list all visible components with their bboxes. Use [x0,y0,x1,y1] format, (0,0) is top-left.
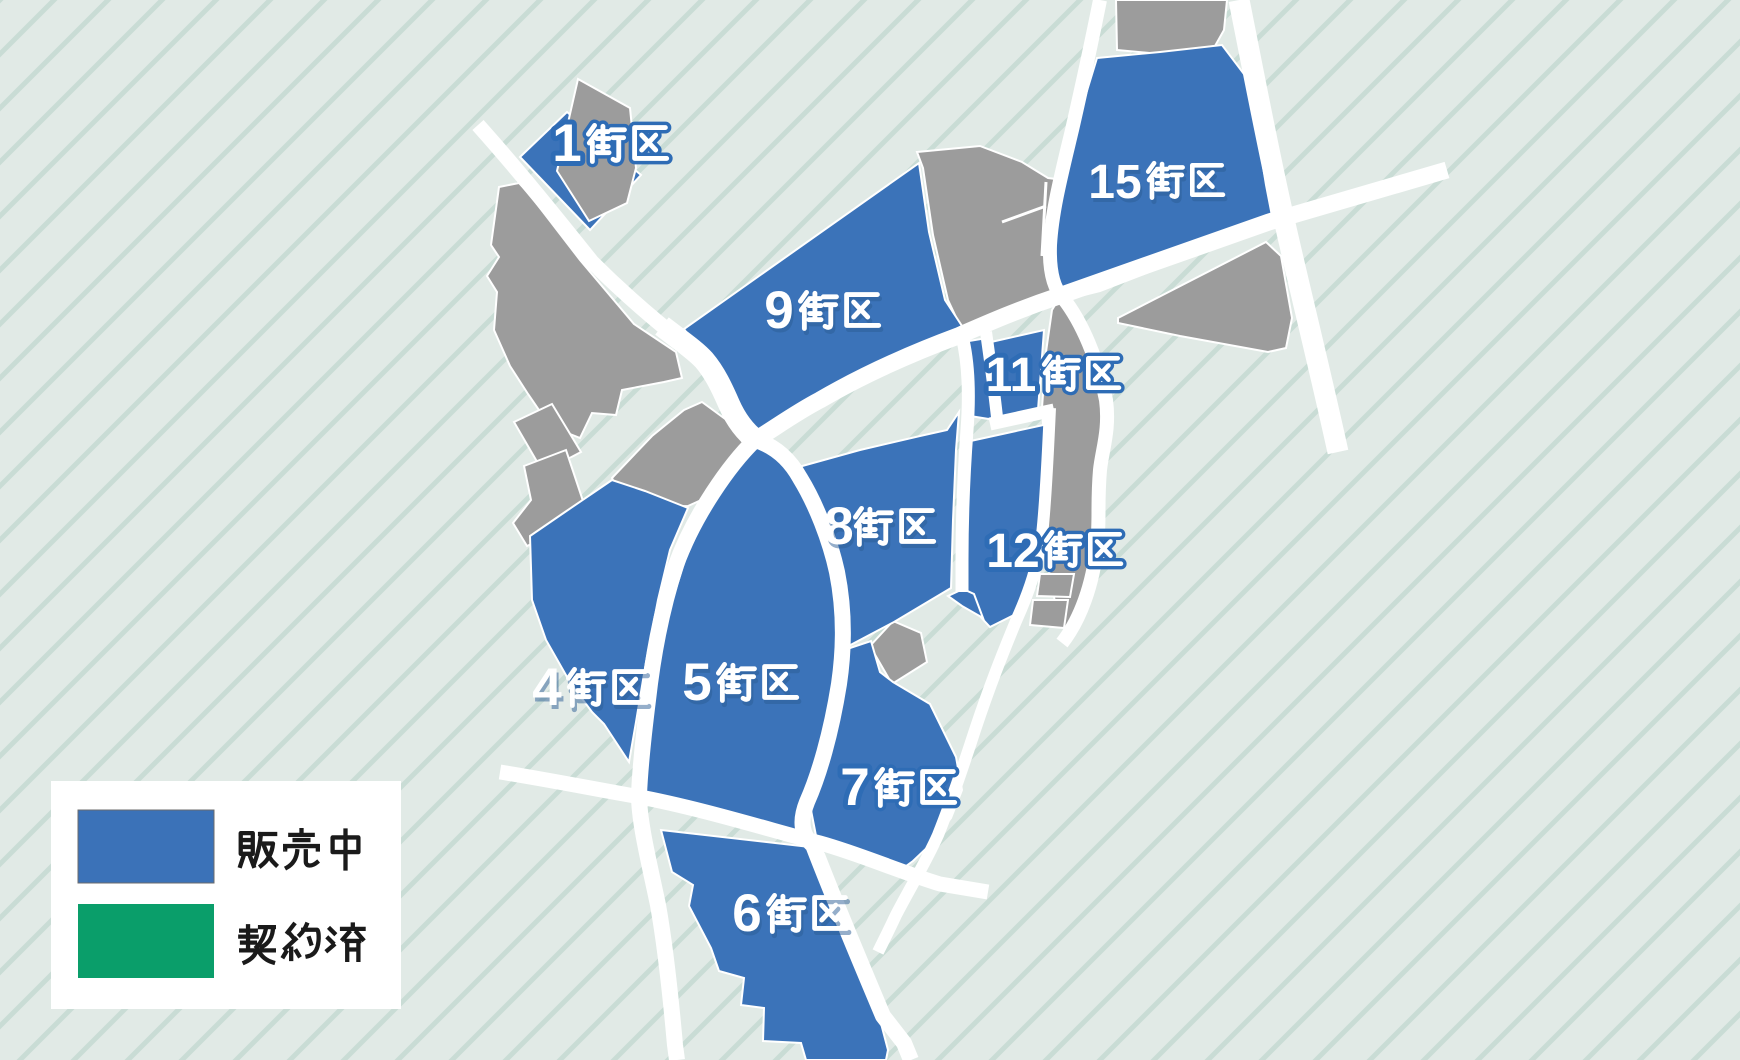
svg-text:9: 9 [764,281,793,340]
svg-text:11: 11 [986,349,1037,402]
svg-text:5: 5 [682,653,711,712]
svg-text:4: 4 [532,658,562,717]
svg-text:7: 7 [840,758,869,817]
svg-text:12: 12 [986,525,1039,578]
svg-text:1: 1 [552,114,581,173]
svg-text:8: 8 [824,497,853,556]
svg-text:6: 6 [732,884,761,943]
svg-text:15: 15 [1088,156,1141,209]
